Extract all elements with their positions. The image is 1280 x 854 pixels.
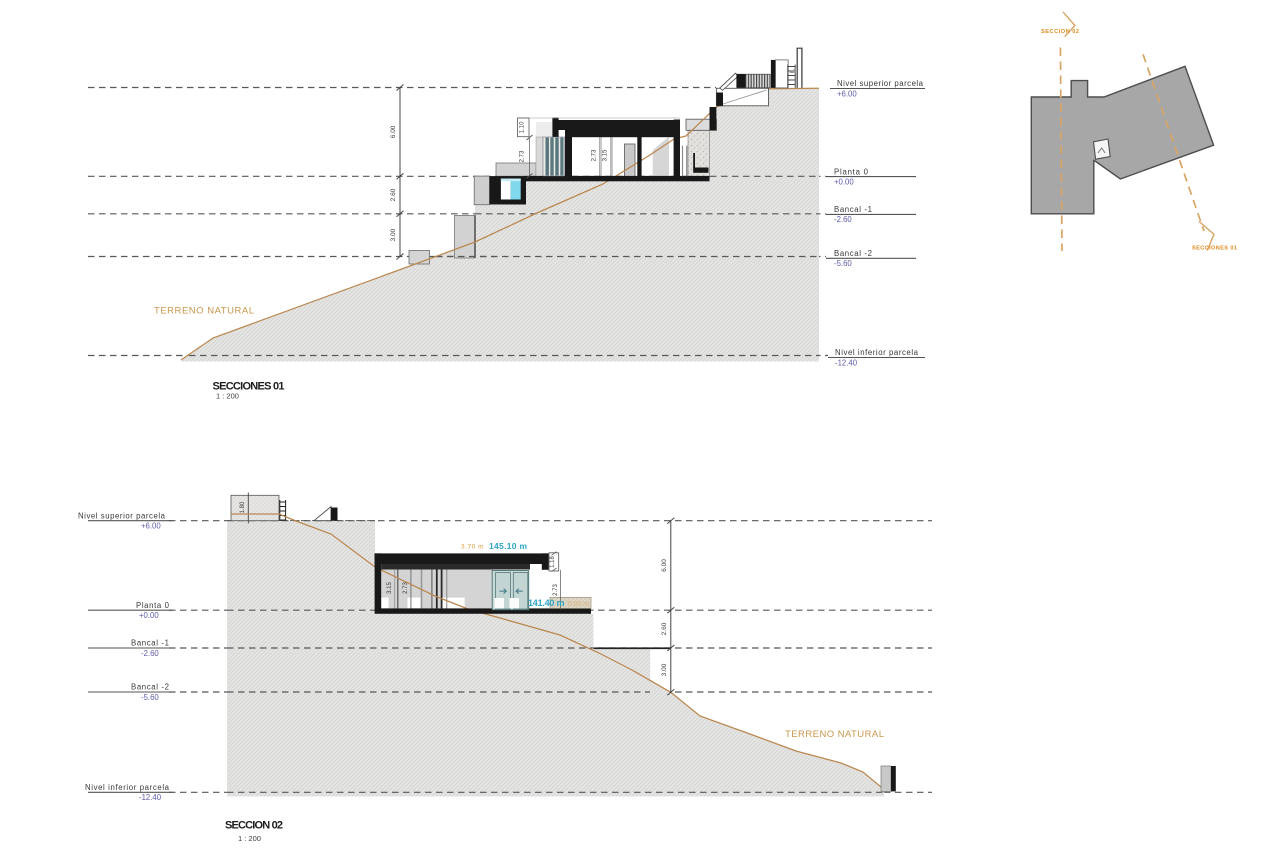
- svg-text:+6.00: +6.00: [141, 522, 161, 531]
- svg-text:6.00: 6.00: [661, 559, 668, 572]
- svg-text:3.70 m: 3.70 m: [461, 544, 484, 551]
- svg-text:1.80: 1.80: [240, 501, 246, 513]
- svg-text:3.00: 3.00: [390, 228, 397, 241]
- svg-text:SECCION 02: SECCION 02: [225, 820, 283, 832]
- svg-text:SECCION 02: SECCION 02: [1041, 29, 1079, 35]
- svg-text:1 : 200: 1 : 200: [238, 834, 261, 843]
- svg-text:1 : 200: 1 : 200: [216, 392, 239, 401]
- svg-text:2.60: 2.60: [661, 622, 668, 635]
- svg-text:-12.40: -12.40: [835, 358, 858, 367]
- svg-text:Bancal -1: Bancal -1: [834, 205, 872, 214]
- svg-text:TERRENO NATURAL: TERRENO NATURAL: [785, 729, 885, 740]
- svg-text:+6.00: +6.00: [837, 89, 857, 98]
- svg-text:Nivel inferior parcela: Nivel inferior parcela: [835, 348, 919, 357]
- svg-text:-2.60: -2.60: [834, 215, 852, 224]
- svg-text:+0.00: +0.00: [834, 177, 854, 186]
- svg-text:2.60: 2.60: [390, 188, 397, 201]
- svg-text:-5.60: -5.60: [141, 693, 159, 702]
- svg-text:Planta 0: Planta 0: [136, 601, 170, 610]
- svg-text:Nivel superior parcela: Nivel superior parcela: [78, 511, 166, 520]
- svg-text:TERRENO NATURAL: TERRENO NATURAL: [154, 306, 255, 317]
- svg-text:Bancal -1: Bancal -1: [131, 639, 169, 648]
- svg-text:SECCIONES 01: SECCIONES 01: [1192, 246, 1237, 252]
- svg-text:Planta 0: Planta 0: [834, 167, 869, 176]
- svg-text:-2.60: -2.60: [141, 649, 159, 658]
- svg-text:1.10: 1.10: [520, 121, 526, 133]
- svg-text:-12.40: -12.40: [139, 793, 162, 802]
- svg-text:SECCIONES 01: SECCIONES 01: [213, 381, 285, 393]
- svg-text:3.15: 3.15: [603, 149, 609, 161]
- svg-text:3.00: 3.00: [661, 663, 668, 676]
- svg-text:+0.00: +0.00: [139, 611, 159, 620]
- svg-text:1.18: 1.18: [550, 556, 556, 568]
- svg-text:3.15: 3.15: [387, 582, 393, 594]
- svg-text:6.00: 6.00: [390, 125, 397, 138]
- svg-text:145.10 m: 145.10 m: [489, 541, 527, 551]
- svg-text:Nivel superior parcela: Nivel superior parcela: [837, 79, 924, 88]
- svg-text:2.73: 2.73: [553, 584, 559, 596]
- svg-text:Nivel inferior parcela: Nivel inferior parcela: [85, 783, 170, 792]
- svg-text:0.00 m: 0.00 m: [568, 601, 589, 608]
- svg-text:Bancal -2: Bancal -2: [131, 683, 169, 692]
- svg-text:141.40 m: 141.40 m: [528, 598, 565, 608]
- svg-text:-5.60: -5.60: [834, 259, 852, 268]
- svg-text:2.73: 2.73: [592, 149, 598, 161]
- svg-text:2.73: 2.73: [520, 150, 526, 162]
- svg-text:Bancal -2: Bancal -2: [834, 249, 872, 258]
